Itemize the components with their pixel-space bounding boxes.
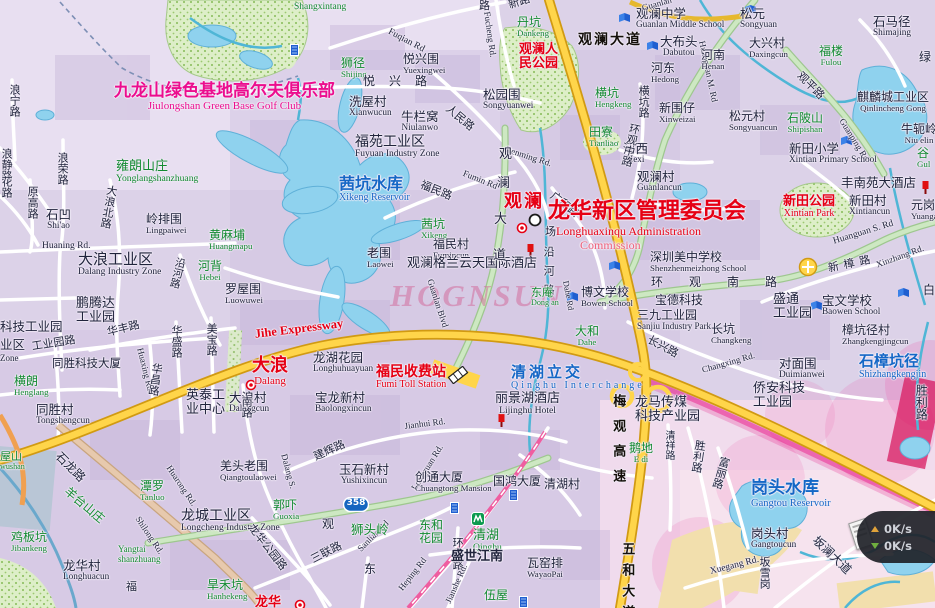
map-label: 科技工业园 [0,320,63,334]
map-label: 瓦窑排WayaoPai [527,557,563,580]
map-label: 岭排围Lingpaiwei [146,213,186,236]
map-label: 盛通工业园 [773,293,812,322]
map-label: 悦兴围Yuexingwei [403,53,445,76]
map-label: 大兴村Daxingcun [749,37,788,60]
map-label: 新田公园Xintian Park [783,195,835,220]
upload-arrow-icon [871,526,879,532]
map-label: 浪荣路 [56,152,68,185]
station-ring-icon [528,212,542,231]
map-label: Zone [0,354,19,364]
map-canvas[interactable]: HOGNSUN Shangxintang九龙山绿色基地高尔夫俱乐部Jiulong… [0,0,935,608]
map-label: 福苑工业区Fuyuan Industry Zone [355,135,439,160]
map-label: 旱禾坑Hanhekeng [207,579,247,602]
map-label: 岗头水库Gangtou Reservoir [751,479,831,509]
map-label: 澜 [497,177,510,191]
map-label: 绿 [919,51,931,64]
map-label: 鸡板坑Jibankeng [11,531,47,554]
building-icon [509,486,518,505]
map-label: 道 [493,249,506,263]
map-label: 河东Hedong [651,62,679,85]
map-label: 大和Dahe [575,325,599,348]
map-label: 石陂山Shipishan [787,112,823,135]
download-speed-row: 0K/s [871,539,935,553]
map-label: 大布头Dabutou [660,35,698,58]
map-label: 新田村Xintiancun [849,194,890,217]
map-label: 河背Hebei [198,260,222,283]
map-label: 英泰工业中心 [186,389,225,418]
map-label: 丰南苑大酒店 [841,176,916,190]
school-icon [618,8,631,27]
station-icon [516,219,528,238]
map-label: 大浪Dalang [252,356,288,387]
map-label: 盛世江南 [451,550,503,564]
map-label: 福楼Fulou [819,45,843,68]
map-label: 牛栏窝Niulanwo [401,110,439,133]
map-label: 观澜 [504,192,544,212]
map-label: Shangxintang [294,2,346,12]
map-label: 东和花园 [419,519,443,545]
map-label: 对面围Duimianwei [779,357,825,380]
building-icon [450,499,459,518]
map-label: 横坑路 [637,85,649,118]
map-label: 坂雪岗 [758,556,770,589]
map-label: 丽景湖酒店Lijinghu Hotel [495,392,560,416]
map-label: 龙马传煤科技产业园 [635,396,700,425]
map-label: 石凹Shi'ao [46,208,71,231]
map-label: 观澜人民公园 [519,43,558,72]
map-label: 观 [322,518,334,531]
map-label: 玉石新村Yushixincun [339,463,389,486]
map-label: 原高路 [26,186,38,219]
map-label: 五和大道 [619,542,633,608]
map-label: 龙华新区管理委员会 [548,200,746,224]
map-label: 梅观高速 [610,394,624,494]
download-speed-value: 0K/s [884,539,912,553]
download-arrow-icon [871,543,879,549]
map-label: 白 [923,284,935,297]
map-label: 洗屋村Xianwucun [349,95,392,118]
route-shield-358: 358 [343,497,369,516]
map-label: 深圳美中学校Shenzhenmeizhong School [650,251,746,274]
map-label: 松园围Songyuanwei [483,88,533,111]
map-label: 业区 [0,338,25,352]
map-label: 牛轭岭Niu elin [901,123,935,146]
map-label: 环观南路 [651,276,803,289]
map-label: 鹏腾达工业园 [76,297,115,326]
map-label: 宝龙新村Baolongxincun [315,391,372,414]
map-label: 清祥路 [663,430,674,460]
map-label: 老围Laowei [367,247,394,270]
map-label: 九龙山绿色基地高尔夫俱乐部Jiulongshan Green Base Golf… [114,82,335,112]
upload-speed-value: 0K/s [884,522,912,536]
map-label: 樟坑径村Zhangkengjingcun [842,324,909,347]
map-label: Commission [580,239,641,252]
map-label: 浪宁路 [8,84,20,117]
map-label: 清湖村 [544,478,580,491]
hotel-icon [921,179,930,198]
building-icon [519,593,528,608]
toll-gate-icon [447,366,469,388]
map-label: 胜利路 [914,384,927,420]
map-label: 悦兴路 [363,75,441,88]
map-label: 羌头老围Qiangtoulaowei [220,460,277,483]
building-icon [290,41,299,60]
school-icon [608,256,621,275]
map-label: 黄麻埔Huangmapu [209,229,252,252]
map-label: 场 [545,226,556,238]
map-label: 新围仔Xinweizai [659,102,695,125]
map-label: 观 [499,148,512,162]
map-label: 东 [364,563,376,576]
map-label: 茜坑水库Xikeng Reservoir [339,175,410,203]
map-label: 岗头村Gangtoucun [751,527,796,550]
station-icon [294,596,306,608]
map-label: 侨安科技工业园 [753,382,805,411]
map-label: 石樟坑径Shizhangkengjin [859,353,926,380]
map-label: 博文学校Bowen School [581,286,633,309]
map-label: 伍屋 [484,589,508,602]
map-label: 麒麟城工业区Qinlincheng Gong [857,91,929,114]
map-label: 屋山wushan [0,451,25,472]
map-label: 新田小学Xintian Primary School [789,142,877,165]
map-label: 松元Songyuan [740,7,777,30]
map-label: 观澜大道 [578,33,642,48]
map-label: 福 [126,581,137,593]
map-label: 丹坑Dankeng [517,16,549,39]
map-label: 长坑Changkeng [711,323,751,346]
map-label: 国鸿大厦 [493,475,541,488]
map-label: 横朗Henglang [14,375,49,398]
map-label: 龙湖花园Longhuhuayuan [313,351,373,374]
map-label: 观澜格兰云天国际酒店 [407,257,537,271]
map-label: 松元村Songyuancun [729,110,777,133]
school-icon [646,36,659,55]
map-label: 花路 [0,176,12,198]
map-label: 同胜科技大厦 [52,357,121,370]
map-label: 创通大厦Chuangtong Mansion [415,471,492,494]
map-label: 横坑Hengkeng [595,87,631,110]
map-label: 南路 [240,396,252,418]
map-label: 大浪工业区Dalang Industry Zone [78,251,161,277]
map-label: Yangtaishanzhuang [118,545,161,565]
map-label: 潭罗Tanluo [140,480,165,503]
map-label: 龙城工业区Longcheng Industry Zone [181,509,280,534]
map-label: 元岗Yuangang [911,199,935,222]
map-label: 雍朗山庄Yonglangshanzhuang [116,160,198,184]
map-label: 罗屋围Luowuwei [225,283,263,306]
map-label: 路 [479,0,490,12]
map-label: 观澜村Guanlancun [637,170,682,193]
map-label: 河南Henan [701,49,725,72]
school-icon [897,283,910,302]
map-label: 华盛路 [170,325,182,358]
map-label: 宝文学校Baowen School [822,294,880,317]
map-label: 谷Gul [917,147,930,170]
map-label: 田寮Tianliao [589,126,618,149]
map-label: 清湖立交Qinghu Interchange [511,364,645,391]
map-label: 鹅地E di [629,442,653,465]
map-label: 东庵Dong an [531,287,559,308]
map-label: 龙华村Longhuacun [63,559,109,582]
map-label: 石马径Shimajing [873,15,911,38]
map-label: 宝德科技 [655,294,703,307]
net-speed-overlay: 0K/s 0K/s [857,511,935,563]
map-label: Longhuaxinqu Administration [556,225,701,238]
map-label: 三九工业园Sanjiu Industry Park [637,309,711,332]
map-label: 龙华 [255,596,281,608]
map-label: 大 [494,213,507,227]
map-label: 同胜村Tongshengcun [36,403,90,426]
map-label: 福民收费站Fumi Toll Station [376,365,446,391]
map-label: 狮头岭 [351,523,389,537]
map-label: 美宝路 [205,323,217,356]
upload-speed-row: 0K/s [871,522,935,536]
